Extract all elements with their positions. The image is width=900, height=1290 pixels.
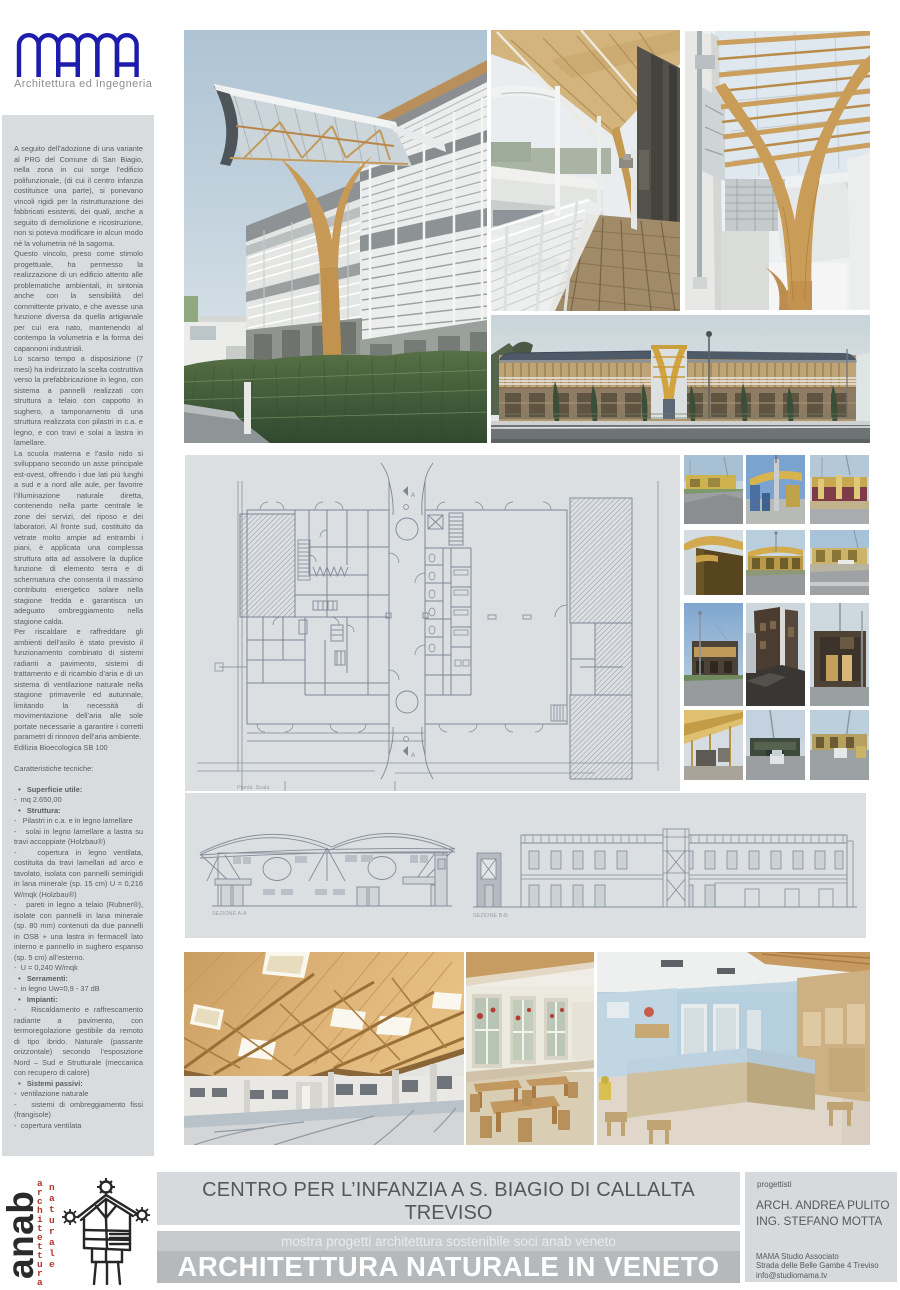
- svg-text:a: a: [49, 1237, 55, 1248]
- svg-text:a: a: [37, 1277, 43, 1285]
- svg-text:e: e: [49, 1259, 55, 1270]
- svg-text:Pianta Scala: Pianta Scala: [237, 785, 270, 791]
- svg-text:anab: anab: [0, 1191, 41, 1279]
- svg-text:SEZIONE A-A: SEZIONE A-A: [212, 911, 247, 917]
- svg-text:A: A: [411, 493, 415, 499]
- svg-text:n: n: [49, 1182, 55, 1193]
- svg-text:r: r: [49, 1226, 55, 1237]
- svg-text:t: t: [49, 1204, 55, 1215]
- svg-text:u: u: [49, 1215, 55, 1226]
- svg-text:a: a: [49, 1193, 55, 1204]
- svg-text:l: l: [49, 1248, 55, 1259]
- svg-text:SEZIONE B-B: SEZIONE B-B: [473, 913, 508, 919]
- svg-text:A: A: [411, 753, 415, 759]
